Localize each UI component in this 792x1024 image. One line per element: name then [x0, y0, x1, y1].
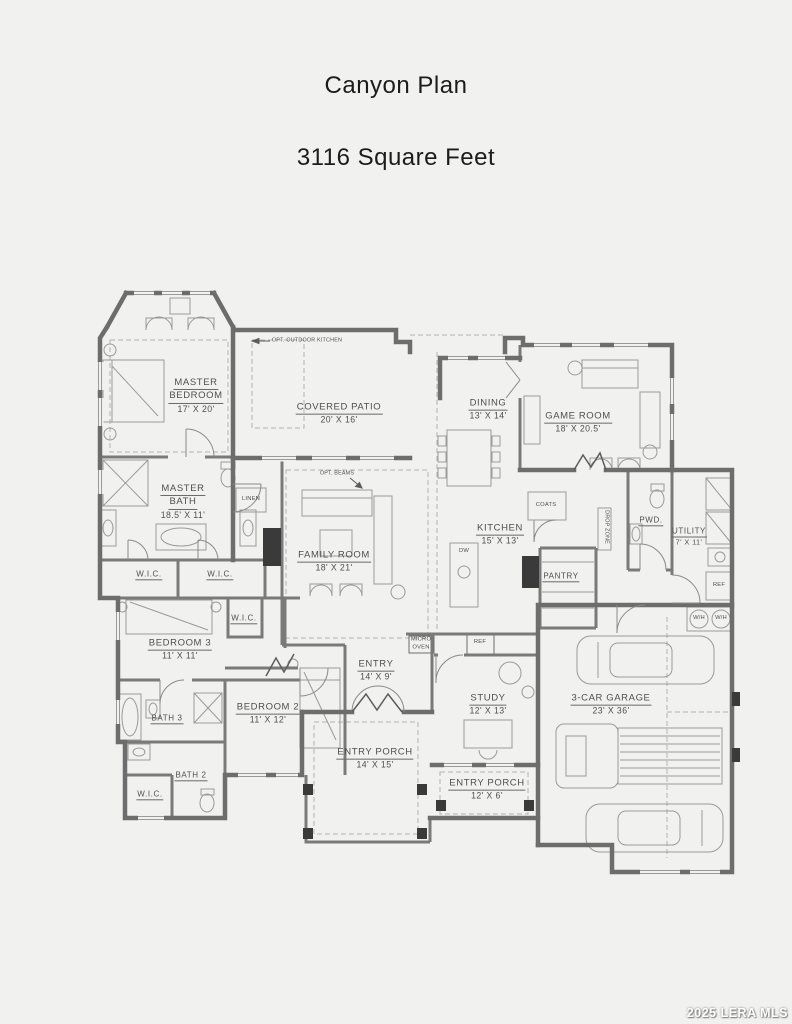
floor-plan: MASTERBEDROOM17' X 20'COVERED PATIO20' X…: [0, 0, 792, 1024]
furniture: [100, 298, 732, 812]
annotation-arrows: [252, 339, 362, 489]
floor-plan-drawing: [0, 0, 792, 1024]
door-arcs: [128, 362, 700, 712]
exterior-walls: [100, 293, 732, 872]
floor-plan-page: Canyon Plan 3116 Square Feet: [0, 0, 792, 1024]
windows: [99, 292, 721, 874]
mls-watermark: 2025 LERA MLS: [687, 1006, 788, 1020]
garage-vehicles: [556, 636, 723, 852]
